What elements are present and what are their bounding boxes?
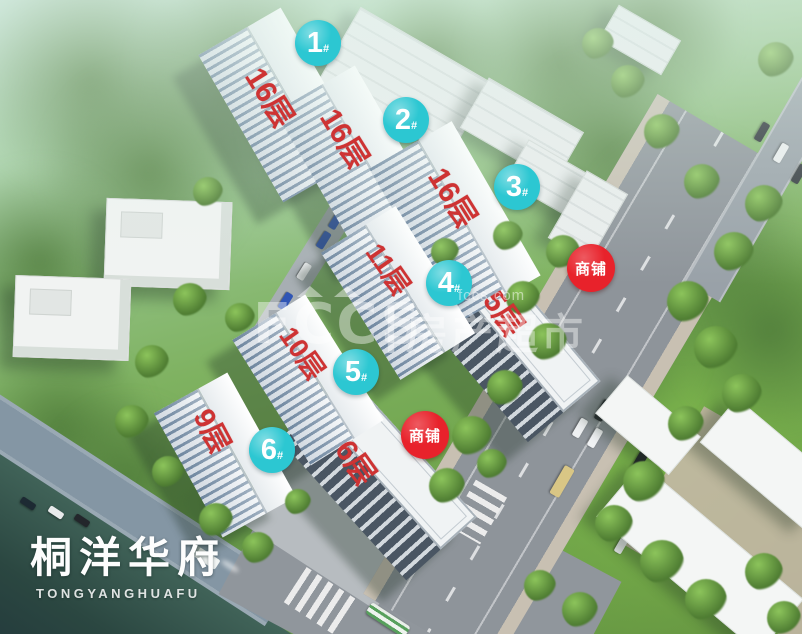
flat-building — [13, 275, 132, 361]
tree — [640, 540, 684, 584]
tree — [667, 281, 709, 323]
building-marker-6: 6# — [249, 427, 295, 473]
tree — [582, 28, 614, 60]
tree — [173, 283, 207, 317]
flat-building — [104, 198, 233, 290]
marker-number: 5 — [345, 356, 361, 388]
project-subtitle: TONGYANGHUAFU — [36, 586, 201, 601]
shop-badge: 商铺 — [567, 244, 615, 292]
marker-suffix: # — [361, 372, 367, 384]
tree — [722, 374, 762, 414]
tree — [115, 405, 149, 439]
building-marker-1: 1# — [295, 20, 341, 66]
tree — [152, 456, 184, 488]
project-title: 桐洋华府 — [30, 524, 226, 585]
tree — [684, 164, 720, 200]
tree — [745, 185, 783, 223]
tree — [477, 449, 507, 479]
tree — [685, 579, 727, 621]
tree — [225, 303, 255, 333]
tree — [487, 370, 523, 406]
marker-suffix: # — [522, 187, 528, 199]
shop-badge: 商铺 — [401, 411, 449, 459]
tree — [767, 601, 801, 634]
rooftop-structure — [120, 211, 163, 238]
building-marker-2: 2# — [383, 97, 429, 143]
tree — [644, 114, 680, 150]
tree — [611, 65, 645, 99]
aerial-rendering: 16层 16层 16层 11层 10层 9层 5层 6层 1# 2# 3# 4#… — [0, 0, 802, 634]
marker-suffix: # — [411, 120, 417, 132]
marker-number: 3 — [506, 171, 522, 203]
tree — [493, 221, 523, 251]
tree — [758, 42, 794, 78]
tree — [623, 461, 665, 503]
building-marker-3: 3# — [494, 164, 540, 210]
building-marker-4: 4# — [426, 260, 472, 306]
building-marker-5: 5# — [333, 349, 379, 395]
tree — [745, 553, 783, 591]
tree — [242, 532, 274, 564]
tree — [694, 326, 738, 370]
tree — [668, 406, 704, 442]
marker-number: 6 — [261, 434, 277, 466]
tree — [529, 323, 567, 361]
marker-number: 4 — [438, 267, 454, 299]
rooftop-structure — [29, 289, 72, 316]
tree — [714, 232, 754, 272]
tree — [135, 345, 169, 379]
marker-number: 1 — [307, 27, 323, 59]
tree — [429, 468, 465, 504]
tree — [193, 177, 223, 207]
marker-suffix: # — [323, 43, 329, 55]
marker-suffix: # — [277, 450, 283, 462]
tree — [285, 489, 311, 515]
tree — [524, 570, 556, 602]
marker-suffix: # — [454, 283, 460, 295]
marker-number: 2 — [395, 104, 411, 136]
tree — [562, 592, 598, 628]
tree — [595, 505, 633, 543]
